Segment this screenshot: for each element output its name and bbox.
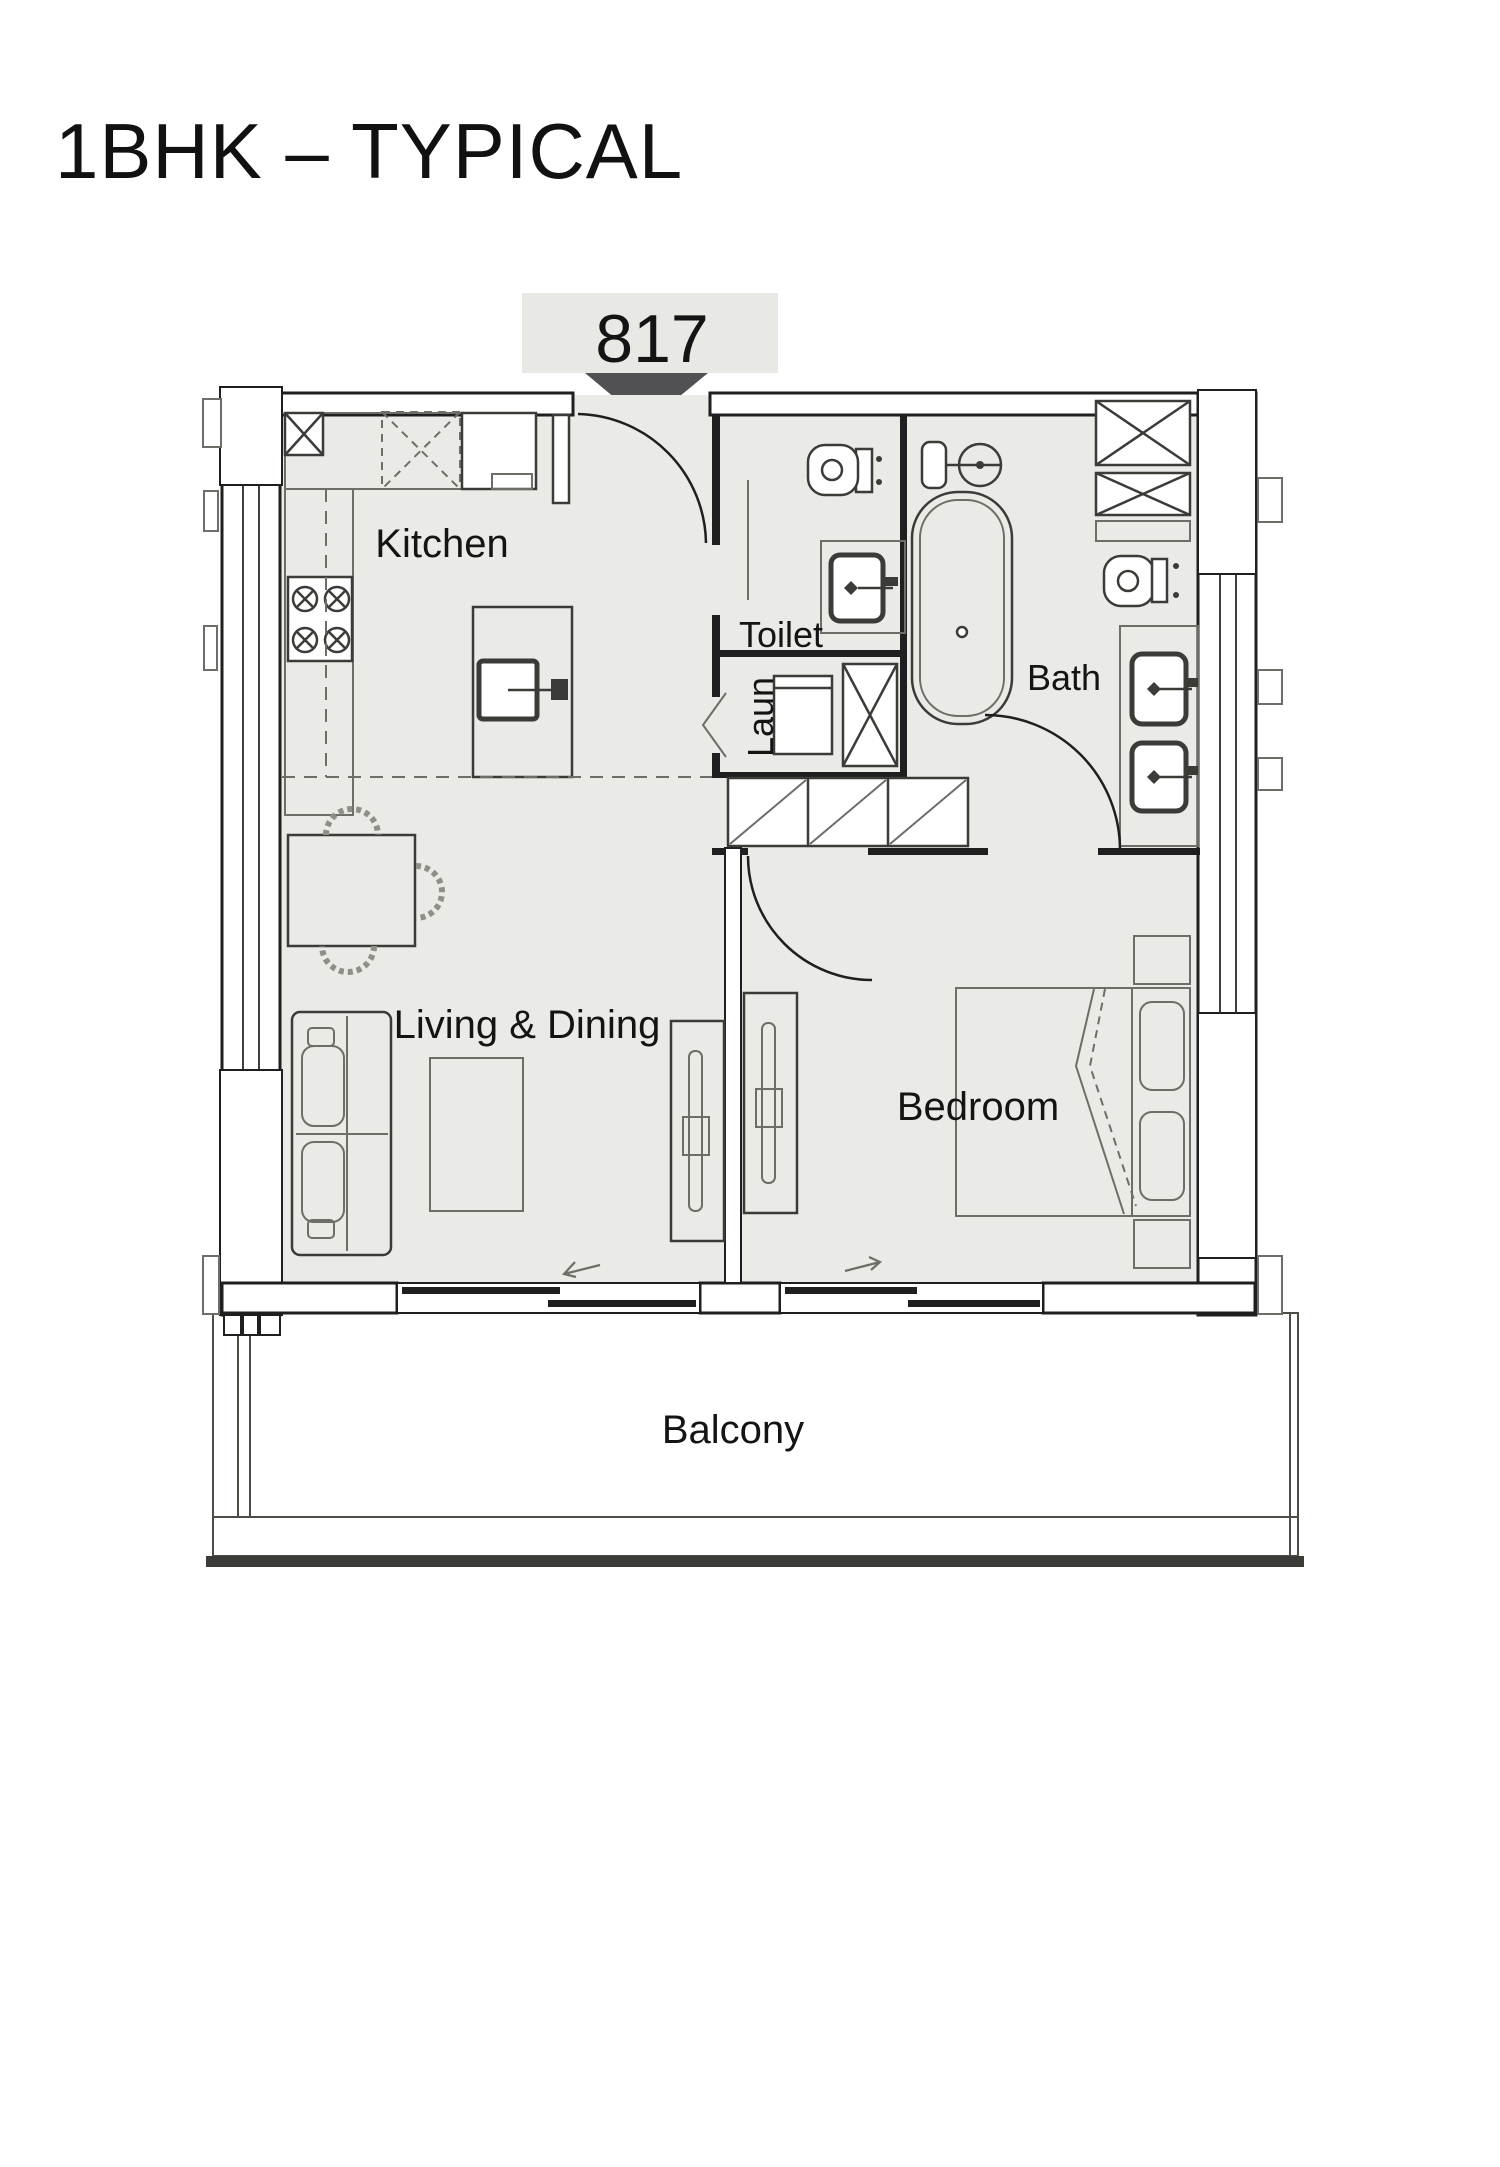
sliding-door-panel <box>402 1287 560 1294</box>
toilet-label: Toilet <box>739 614 823 655</box>
balcony-outer-rail <box>206 1556 1304 1567</box>
column <box>1198 1013 1256 1258</box>
sink-tap-icon <box>551 679 568 700</box>
fridge <box>462 413 536 489</box>
wc-toilet <box>808 445 882 495</box>
basin-drain <box>976 461 984 469</box>
floor-plan-page: 1BHK – TYPICAL 817 Balcony <box>0 0 1500 2167</box>
window-sill-stub <box>1258 758 1282 790</box>
window-sill-stub <box>203 1256 219 1314</box>
hall-wall <box>712 415 720 545</box>
wc-toilet-bath <box>1104 556 1179 606</box>
living-bedroom-wall <box>725 848 741 1283</box>
bottom-wall-segment <box>222 1283 397 1313</box>
column <box>220 387 282 485</box>
column <box>220 1070 282 1315</box>
balcony-edge-band <box>213 1517 1298 1556</box>
window-sill-stub <box>1258 670 1282 704</box>
page-title: 1BHK – TYPICAL <box>55 107 683 195</box>
wc-bowl <box>808 445 858 495</box>
window-sill-stub <box>1258 478 1282 522</box>
balcony-label: Balcony <box>662 1408 804 1452</box>
sliding-door-panel <box>785 1287 917 1294</box>
hall-wardrobe <box>728 778 968 846</box>
window-sill-stub <box>1258 1256 1282 1314</box>
column <box>1198 390 1256 574</box>
living-dining-label: Living & Dining <box>394 1003 661 1047</box>
basin-body <box>922 442 946 488</box>
bedroom-label: Bedroom <box>897 1085 1059 1129</box>
bath-label: Bath <box>1027 657 1101 698</box>
laundry-label: Laun <box>740 677 781 757</box>
wc-hinge-dot <box>1173 592 1179 598</box>
bottom-wall-segment <box>700 1283 780 1313</box>
wc-hinge-dot <box>876 456 882 462</box>
window-sill-stub <box>203 399 221 447</box>
sink-tap-icon <box>1184 766 1198 775</box>
wc-hinge-dot <box>1173 563 1179 569</box>
wc-bowl <box>1104 556 1154 606</box>
bedroom-wall <box>868 848 988 855</box>
wc-tank <box>1152 559 1167 602</box>
kitchen-label: Kitchen <box>375 522 508 566</box>
balcony: Balcony <box>206 1313 1304 1567</box>
sliding-door-panel <box>908 1300 1040 1307</box>
stove <box>288 577 352 661</box>
sink-tap-icon <box>1184 678 1198 687</box>
floor-plan: Balcony <box>203 387 1304 1567</box>
wall-base-block <box>260 1315 280 1335</box>
wall-base-block <box>224 1315 241 1335</box>
bedroom-wall <box>1098 848 1200 855</box>
bottom-wall-segment <box>1043 1283 1255 1313</box>
window-sill-stub <box>204 491 218 531</box>
wall-base-block <box>243 1315 258 1335</box>
bathtub-drain <box>957 627 967 637</box>
sliding-door-panel <box>548 1300 696 1307</box>
unit-number: 817 <box>595 301 708 377</box>
door-leaf <box>553 415 569 503</box>
sink-tap-icon <box>883 577 898 586</box>
window-sill-stub <box>204 626 217 670</box>
wc-hinge-dot <box>876 479 882 485</box>
